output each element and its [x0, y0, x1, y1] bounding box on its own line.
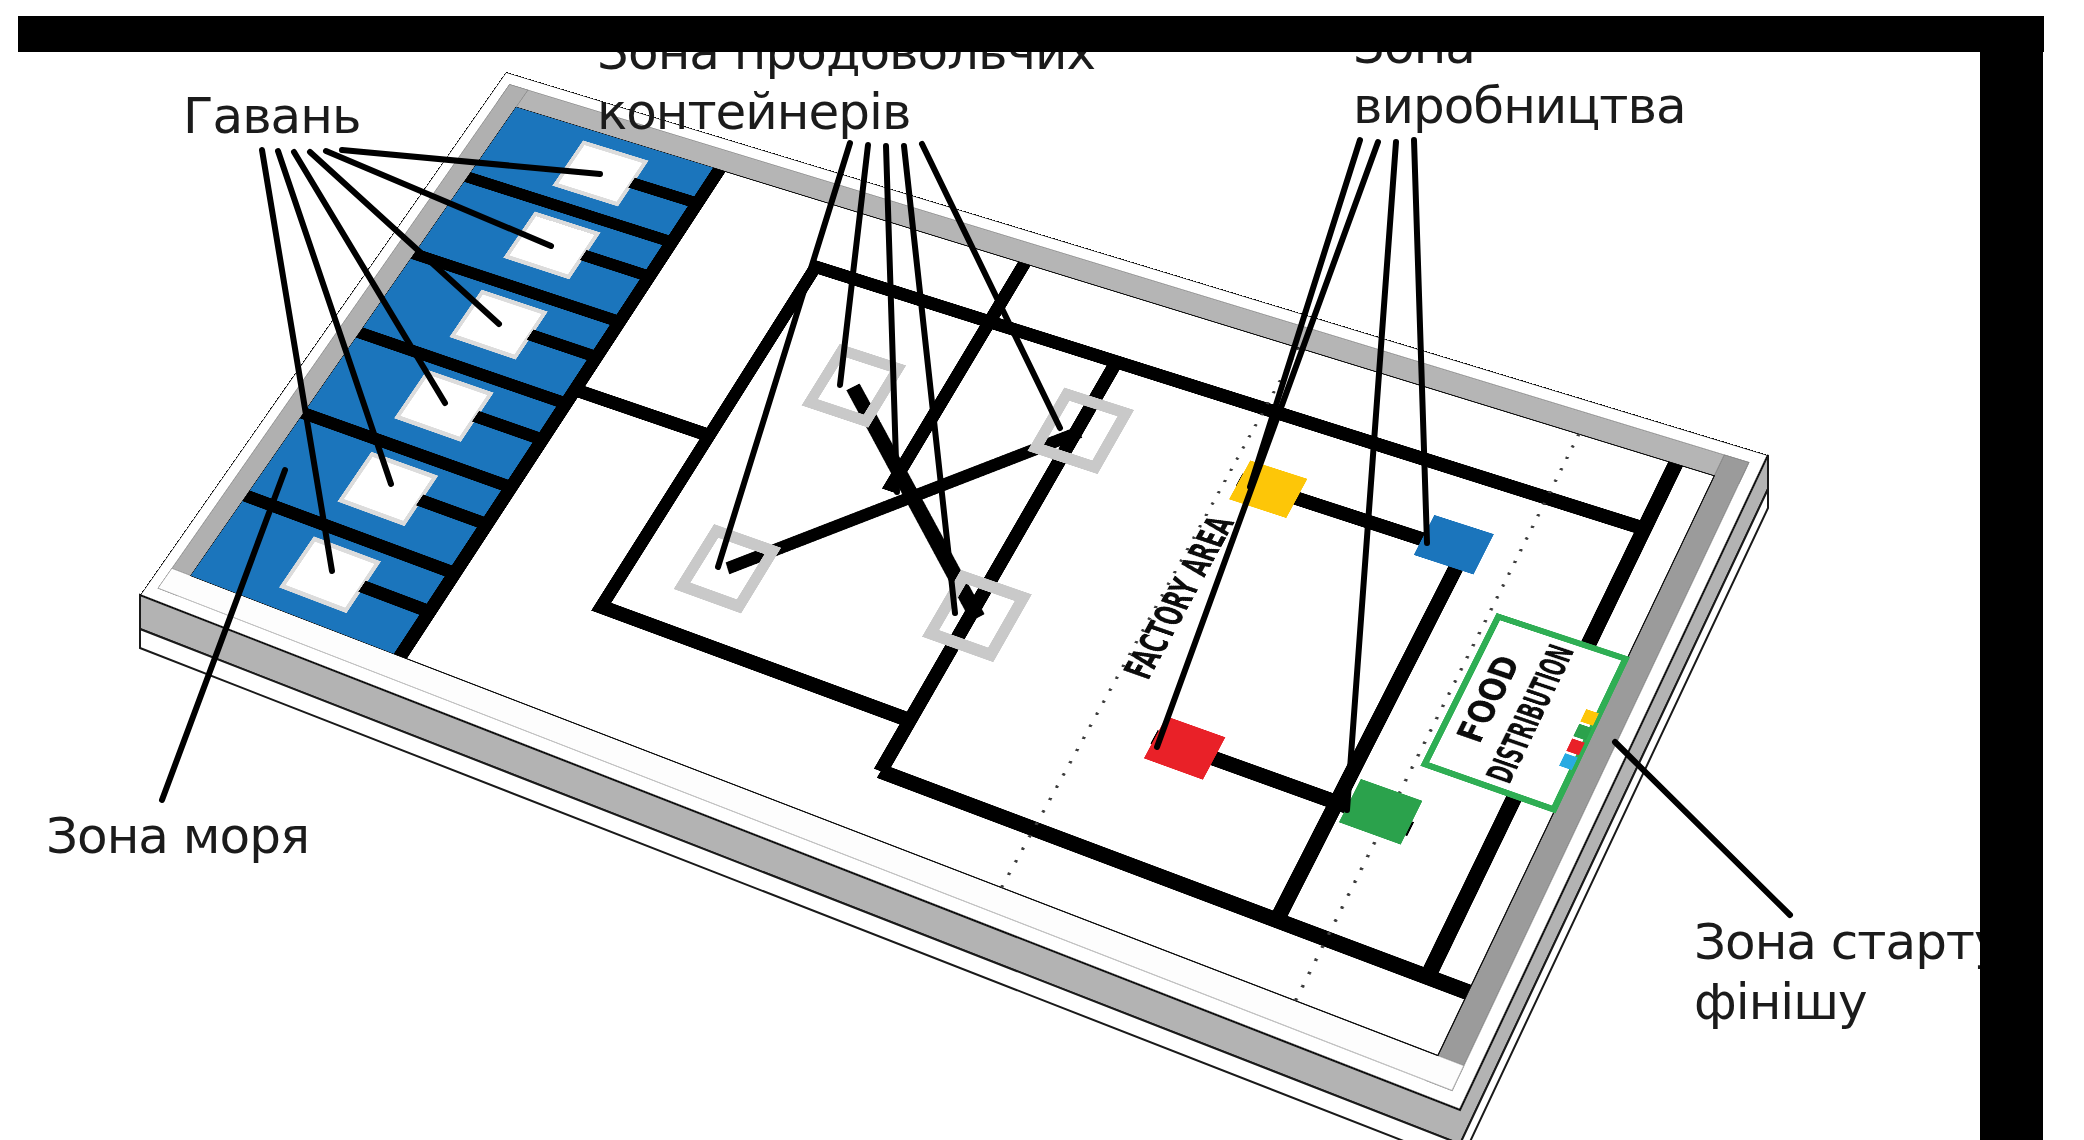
harbor-label: Гавань	[183, 86, 360, 146]
sea-label: Зона моря	[46, 806, 309, 866]
food-containers-label-line2: контейнерів	[597, 82, 1095, 142]
start-pointer	[1615, 742, 1790, 915]
crop-bar-top	[18, 16, 2044, 52]
production-label-line2: виробництва	[1353, 76, 1686, 136]
crop-bar-right	[1980, 47, 2043, 1140]
start-finish-label-line1: Зона старту	[1694, 912, 2003, 972]
sea-pointer	[162, 470, 285, 800]
field-diagram: FACTORY AREA FOOD DISTRIBUTION	[0, 0, 2084, 1140]
production-pointers	[1157, 140, 1427, 810]
harbor-label-text: Гавань	[183, 87, 360, 145]
start-finish-label: Зона старту фінішу	[1694, 912, 2003, 1032]
container-pointers	[718, 143, 1060, 613]
start-finish-label-line2: фінішу	[1694, 972, 2003, 1032]
sea-label-text: Зона моря	[46, 807, 309, 865]
harbor-pointers	[262, 150, 600, 571]
